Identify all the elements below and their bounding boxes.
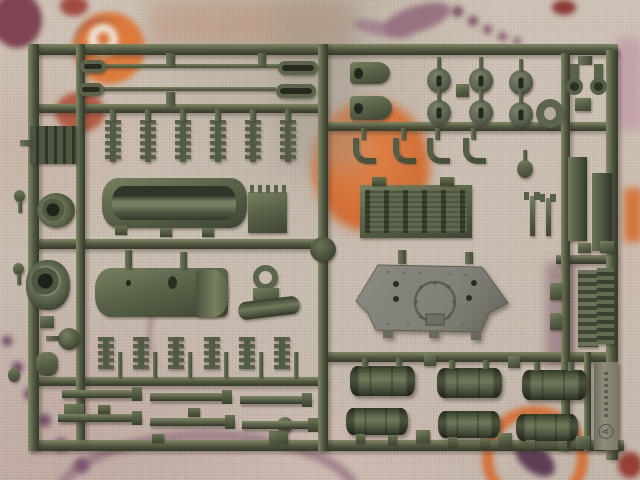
roller-wheel-part	[469, 100, 493, 125]
track-comb-part	[140, 120, 156, 162]
track-comb-part	[98, 337, 114, 369]
sprue-stub	[285, 109, 291, 121]
stowage-hook-part	[463, 138, 484, 164]
sprue-stub	[259, 352, 263, 378]
fender-strip-part	[242, 421, 318, 429]
track-comb-part	[175, 120, 191, 162]
track-comb-part	[204, 337, 220, 369]
fender-strip-part	[150, 418, 235, 426]
fender-strip-part	[240, 396, 312, 404]
sprue-stub	[362, 358, 368, 367]
tank-bracket	[356, 434, 365, 444]
sprue-stub	[401, 128, 406, 140]
track-comb-part	[210, 120, 226, 162]
sprue-stub	[479, 89, 483, 101]
photo-model-kit-sprue: A	[0, 0, 640, 480]
tank-bracket	[388, 435, 397, 445]
sprue-stub	[361, 128, 366, 140]
sprue-stub	[180, 109, 186, 121]
fuel-tank-part	[437, 368, 502, 398]
fender-strip-part	[150, 393, 232, 401]
sprue-stub	[224, 352, 228, 378]
strip-foot	[188, 408, 200, 417]
track-comb-part	[168, 337, 184, 369]
small-block-part	[576, 436, 590, 449]
sprue-stub	[449, 360, 455, 369]
tank-bracket	[448, 437, 457, 447]
strip-foot	[152, 434, 164, 443]
track-comb-part	[274, 337, 290, 369]
track-comb-part	[239, 337, 255, 369]
strip-foot	[98, 405, 110, 414]
small-block-part	[508, 356, 520, 368]
fuel-tank-part	[516, 414, 578, 441]
sprue-stub	[396, 358, 402, 367]
sprue-frame: A	[0, 0, 640, 480]
sprue-stub	[483, 360, 489, 369]
sprue-stub	[215, 109, 221, 121]
fender-strip-part	[58, 414, 142, 422]
track-comb-part	[133, 337, 149, 369]
track-comb-part	[280, 120, 296, 162]
sprue-stub	[118, 352, 122, 378]
stowage-hook-part	[427, 138, 448, 164]
stowage-hook-part	[353, 138, 374, 164]
sprue-stub	[250, 109, 256, 121]
small-block-part	[424, 354, 436, 366]
small-block-part	[498, 433, 512, 446]
roller-wheel-part	[427, 100, 451, 125]
track-comb-part	[105, 120, 121, 162]
sprue-stub	[110, 109, 116, 121]
tank-bracket	[558, 441, 567, 451]
track-comb-part	[245, 120, 261, 162]
sprue-stub	[435, 128, 440, 140]
fuel-tank-part	[438, 411, 500, 438]
sprue-stub	[153, 352, 157, 378]
fuel-tank-part	[346, 408, 408, 435]
small-block-part	[456, 84, 469, 97]
tank-bracket	[526, 440, 535, 450]
sprue-stub	[471, 128, 476, 140]
fuel-tank-part	[350, 366, 415, 396]
sprue-stub	[188, 352, 192, 378]
sprue-stub	[437, 57, 441, 69]
roller-wheel-part	[509, 102, 533, 127]
sprue-stub	[437, 89, 441, 101]
stowage-hook-part	[393, 138, 414, 164]
sprue-stub	[519, 91, 523, 103]
small-block-part	[416, 430, 430, 443]
sprue-stub	[534, 362, 540, 371]
sprue-stub	[145, 109, 151, 121]
sprue-stub	[519, 59, 523, 71]
tank-bracket	[480, 438, 489, 448]
fuel-tank-part	[522, 370, 587, 400]
sprue-stub	[568, 362, 574, 371]
sprue-stub	[294, 352, 298, 378]
sprue-stub	[479, 57, 483, 69]
fender-strip-part	[62, 390, 142, 398]
